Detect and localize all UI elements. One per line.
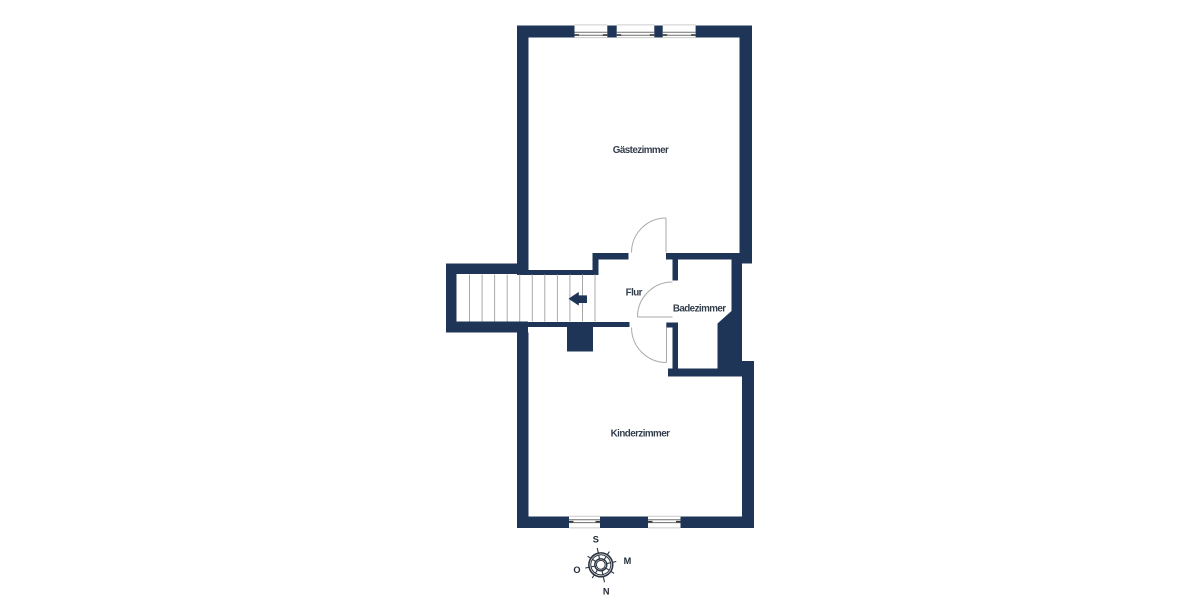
svg-text:S: S	[593, 535, 599, 545]
svg-text:Gästezimmer: Gästezimmer	[613, 145, 669, 156]
svg-text:Flur: Flur	[626, 287, 643, 298]
svg-text:Badezimmer: Badezimmer	[673, 304, 726, 315]
svg-text:M: M	[624, 556, 632, 566]
svg-text:N: N	[603, 586, 610, 596]
svg-text:Kinderzimmer: Kinderzimmer	[611, 429, 670, 440]
svg-text:O: O	[573, 565, 580, 575]
